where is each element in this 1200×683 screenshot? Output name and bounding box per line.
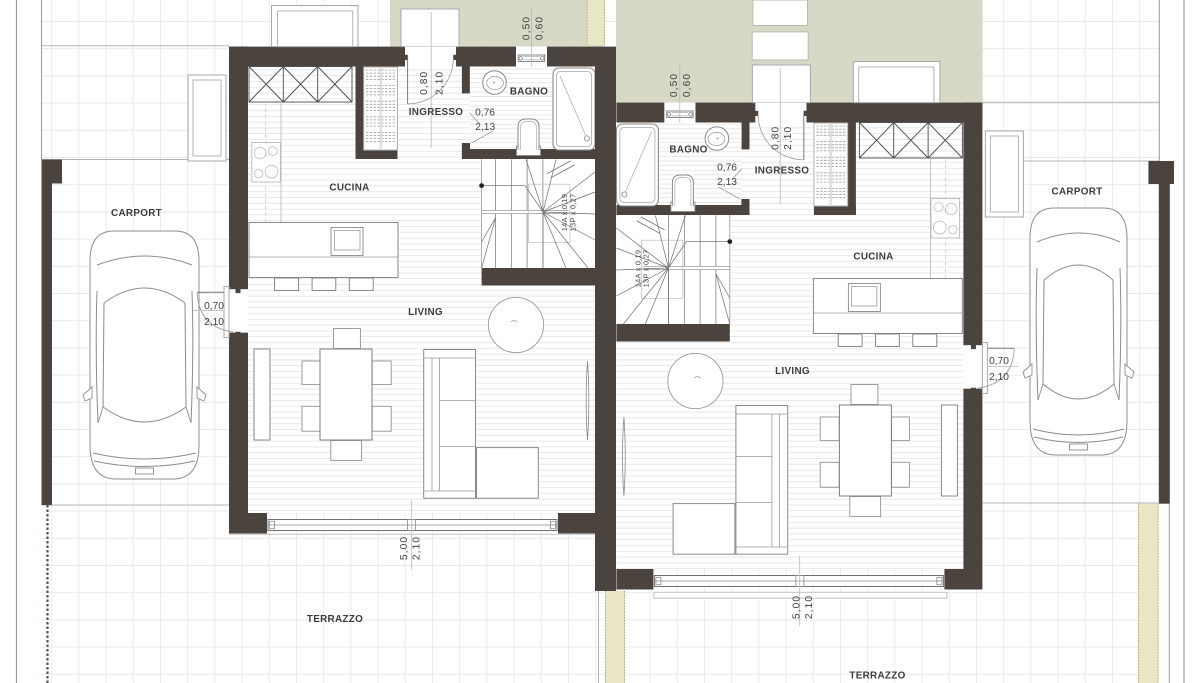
svg-text:2,13: 2,13 xyxy=(475,122,495,133)
svg-text:0,70: 0,70 xyxy=(989,356,1009,367)
svg-text:13P x 0,27: 13P x 0,27 xyxy=(568,194,577,232)
svg-text:BAGNO: BAGNO xyxy=(669,145,707,156)
svg-text:CARPORT: CARPORT xyxy=(111,208,162,219)
svg-text:CARPORT: CARPORT xyxy=(1052,187,1103,198)
svg-text:2,10: 2,10 xyxy=(783,126,794,150)
svg-text:INGRESSO: INGRESSO xyxy=(755,165,810,176)
svg-text:5,00: 5,00 xyxy=(399,536,410,560)
svg-text:0,80: 0,80 xyxy=(770,126,781,150)
svg-text:0,60: 0,60 xyxy=(535,16,546,40)
svg-text:BAGNO: BAGNO xyxy=(510,87,548,98)
svg-text:0,80: 0,80 xyxy=(419,71,430,95)
svg-text:CUCINA: CUCINA xyxy=(329,183,369,194)
svg-text:2,10: 2,10 xyxy=(204,317,224,328)
svg-text:TERRAZZO: TERRAZZO xyxy=(307,614,363,625)
svg-text:0,50: 0,50 xyxy=(669,73,680,97)
svg-text:INGRESSO: INGRESSO xyxy=(409,107,464,118)
svg-text:2,10: 2,10 xyxy=(412,536,423,560)
svg-text:13P x 0,27: 13P x 0,27 xyxy=(642,250,651,288)
svg-text:0,60: 0,60 xyxy=(682,73,693,97)
svg-text:2,10: 2,10 xyxy=(804,595,815,619)
svg-text:0,76: 0,76 xyxy=(475,107,495,118)
svg-text:LIVING: LIVING xyxy=(775,366,810,377)
svg-text:LIVING: LIVING xyxy=(408,307,443,318)
svg-text:5,00: 5,00 xyxy=(791,595,802,619)
svg-text:2,10: 2,10 xyxy=(989,372,1009,383)
svg-text:0,50: 0,50 xyxy=(522,16,533,40)
svg-text:2,10: 2,10 xyxy=(434,71,445,95)
svg-text:CUCINA: CUCINA xyxy=(853,252,893,263)
svg-text:0,70: 0,70 xyxy=(204,301,224,312)
svg-text:0,76: 0,76 xyxy=(717,163,737,174)
svg-text:TERRAZZO: TERRAZZO xyxy=(849,671,905,682)
svg-text:2,13: 2,13 xyxy=(717,177,737,188)
